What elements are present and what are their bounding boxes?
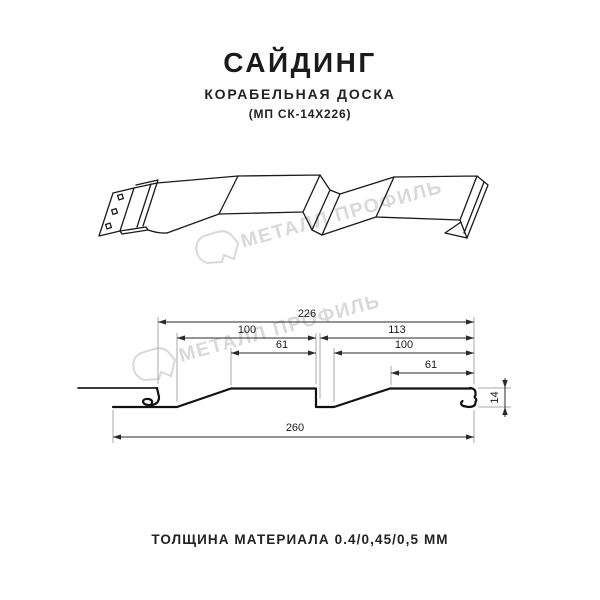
product-spec-page: САЙДИНГ КОРАБЕЛЬНАЯ ДОСКА (МП СК-14Х226)… bbox=[0, 0, 600, 600]
footer-block: ТОЛЩИНА МАТЕРИАЛА 0.4/0,45/0,5 ММ bbox=[0, 532, 600, 547]
lock-curl bbox=[143, 388, 159, 405]
dim-label-100-right: 100 bbox=[395, 339, 413, 351]
dim-label-113: 113 bbox=[388, 324, 406, 336]
dim-label-226: 226 bbox=[298, 308, 316, 320]
dim-260: 260 bbox=[113, 422, 474, 440]
cut-edge-hook bbox=[461, 388, 476, 407]
watermark-lower: МЕТАЛЛ ПРОФИЛЬ bbox=[133, 290, 383, 380]
brand-logo-icon bbox=[196, 231, 238, 263]
dim-226: 226 bbox=[158, 308, 474, 325]
dim-label-100-left: 100 bbox=[238, 324, 256, 336]
dim-61-right: 61 bbox=[391, 359, 474, 376]
material-thickness-text: ТОЛЩИНА МАТЕРИАЛА 0.4/0,45/0,5 ММ bbox=[0, 532, 600, 547]
watermark-text: МЕТАЛЛ ПРОФИЛЬ bbox=[176, 290, 383, 367]
watermark-text: МЕТАЛЛ ПРОФИЛЬ bbox=[238, 176, 445, 253]
brand-logo-icon bbox=[133, 348, 175, 380]
cross-section-profile bbox=[78, 388, 476, 407]
dim-14: 14 bbox=[489, 378, 508, 417]
dim-label-260: 260 bbox=[286, 422, 304, 434]
dim-100-right: 100 bbox=[334, 339, 474, 356]
dim-label-61-left: 61 bbox=[276, 339, 288, 351]
dim-label-14: 14 bbox=[489, 391, 501, 403]
watermark-upper: МЕТАЛЛ ПРОФИЛЬ bbox=[196, 176, 445, 263]
profile-outline bbox=[113, 389, 471, 408]
dim-label-61-right: 61 bbox=[425, 359, 437, 371]
technical-drawing: МЕТАЛЛ ПРОФИЛЬ МЕТАЛЛ ПРОФИЛЬ bbox=[0, 0, 600, 600]
